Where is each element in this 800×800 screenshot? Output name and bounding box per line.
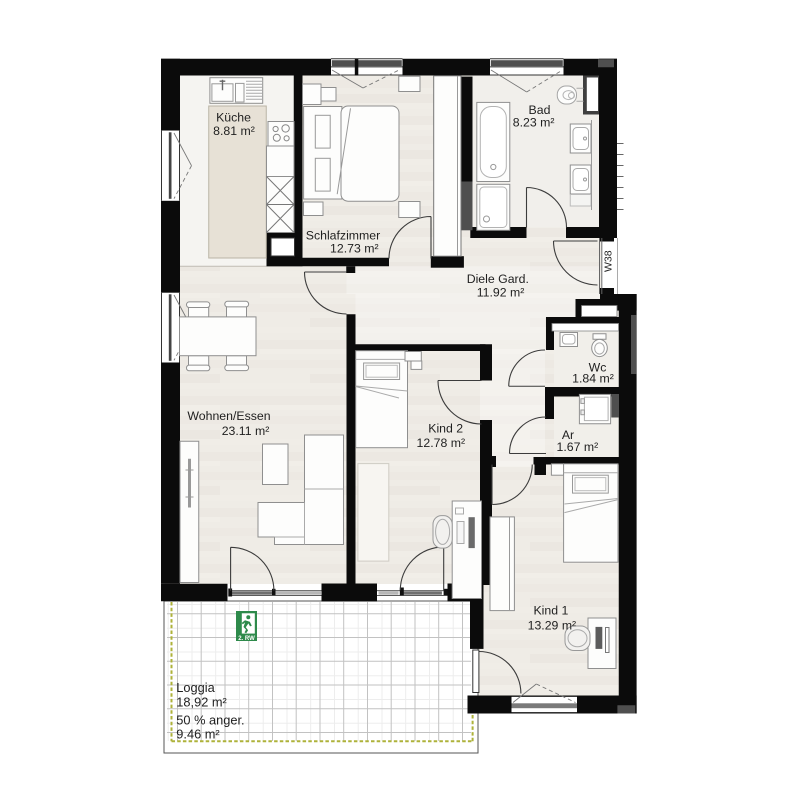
svg-text:W38: W38 <box>603 250 615 272</box>
svg-text:12.73 m²: 12.73 m² <box>330 242 379 256</box>
svg-text:2. RW: 2. RW <box>238 636 255 642</box>
svg-text:9.46 m²: 9.46 m² <box>176 727 220 742</box>
svg-text:Wohnen/Essen: Wohnen/Essen <box>187 409 270 423</box>
svg-text:1.84 m²: 1.84 m² <box>572 372 614 386</box>
svg-text:Schlafzimmer: Schlafzimmer <box>306 228 380 242</box>
svg-text:12.78 m²: 12.78 m² <box>417 436 466 450</box>
svg-text:8.81 m²: 8.81 m² <box>213 124 255 138</box>
svg-text:18,92 m²: 18,92 m² <box>176 694 227 709</box>
svg-text:Kind 1: Kind 1 <box>533 603 568 617</box>
svg-text:23.11 m²: 23.11 m² <box>222 424 270 438</box>
svg-text:13.29 m²: 13.29 m² <box>528 618 577 632</box>
svg-text:1.67 m²: 1.67 m² <box>557 440 599 454</box>
svg-text:Diele Gard.: Diele Gard. <box>467 272 529 286</box>
svg-text:11.92 m²: 11.92 m² <box>477 285 525 299</box>
svg-text:Kind 2: Kind 2 <box>428 422 463 436</box>
svg-text:Küche: Küche <box>216 110 251 124</box>
svg-text:50 % anger.: 50 % anger. <box>176 713 244 728</box>
svg-text:Loggia: Loggia <box>176 680 215 695</box>
svg-text:8.23 m²: 8.23 m² <box>513 115 555 129</box>
